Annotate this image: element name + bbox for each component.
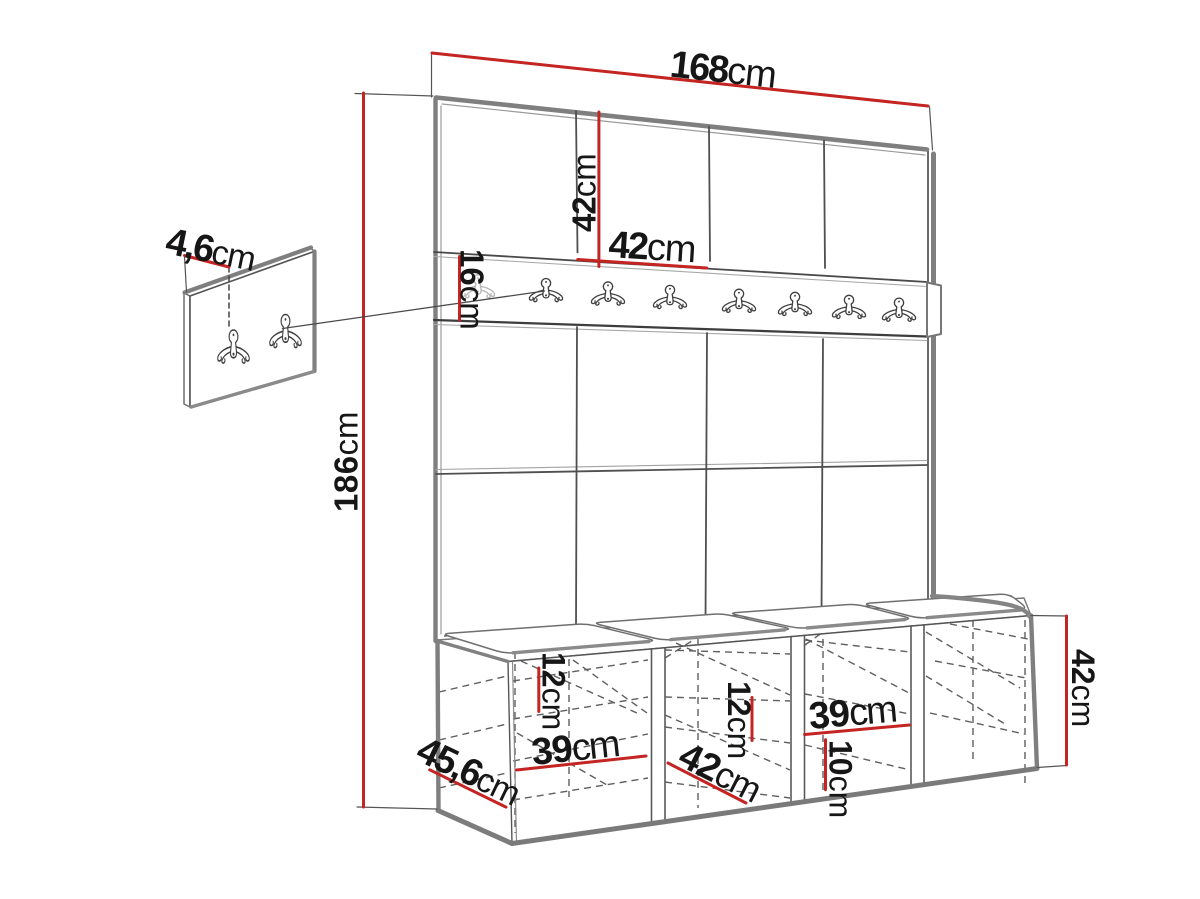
svg-text:186cm: 186cm	[328, 411, 365, 512]
svg-text:16cm: 16cm	[454, 249, 491, 330]
svg-text:168cm: 168cm	[668, 44, 778, 97]
svg-text:42cm: 42cm	[1065, 649, 1101, 727]
svg-text:42cm: 42cm	[566, 153, 603, 232]
svg-text:4,6cm: 4,6cm	[162, 221, 259, 280]
svg-text:12cm: 12cm	[721, 681, 757, 759]
svg-text:12cm: 12cm	[536, 652, 572, 730]
svg-text:10cm: 10cm	[823, 740, 859, 818]
svg-text:42cm: 42cm	[607, 224, 696, 271]
svg-text:39cm: 39cm	[807, 689, 898, 738]
